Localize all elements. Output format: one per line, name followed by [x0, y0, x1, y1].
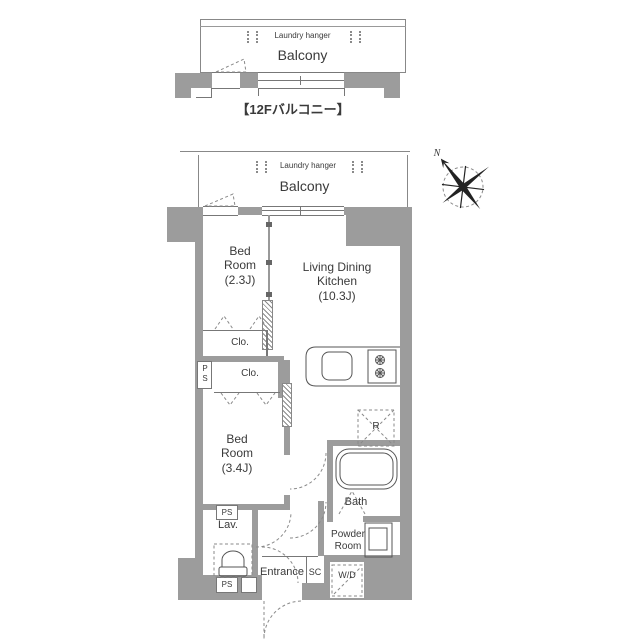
closet2-label: Clo. — [225, 368, 275, 380]
toilet-bowl — [222, 551, 244, 567]
symbols-overlay — [0, 0, 640, 640]
lav-label: Lav. — [204, 519, 252, 532]
ldk-label: Living DiningKitchen(10.3J) — [287, 260, 387, 303]
stove-burner-2 — [376, 369, 385, 378]
kitchen-stove — [368, 350, 396, 383]
kitchen-sink — [322, 352, 352, 380]
closet2-fold-doors — [221, 393, 275, 405]
bathtub-inner — [340, 453, 393, 485]
toilet-tank — [219, 567, 247, 576]
window-triangle-upper — [216, 59, 246, 72]
kitchen-counter — [306, 347, 400, 386]
ps-bottom-label: PS — [216, 580, 238, 590]
toilet-surround — [214, 544, 252, 577]
ps-mid-label: PS — [216, 508, 238, 518]
hall-upper-door-arc — [290, 453, 326, 489]
closet1-label: Clo. — [215, 337, 265, 349]
stove-burner-1 — [376, 356, 385, 365]
hall-lower-door-arc — [290, 502, 326, 538]
closet1-fold-doors — [215, 316, 268, 329]
bedroom2-label: BedRoom(3.4J) — [197, 432, 277, 475]
ps-vertical-label: PS — [200, 364, 210, 384]
sc-label: SC — [306, 567, 324, 578]
window-triangle-main — [205, 194, 235, 206]
powder-room-label: PowderRoom — [322, 529, 374, 553]
wd-label: W/D — [332, 570, 362, 581]
refrigerator-label: R — [366, 421, 386, 433]
floorplan-page: Laundry hanger Balcony 【12Fバルコニー】 Laundr… — [0, 0, 640, 640]
bedroom1-label: BedRoom(2.3J) — [200, 244, 280, 287]
lav-door-arc — [256, 512, 291, 547]
entrance-label: Entrance — [256, 566, 308, 579]
compass-north-label: N — [430, 148, 444, 160]
bath-label: Bath — [333, 496, 379, 509]
bathtub-outer — [336, 449, 397, 489]
entrance-door-arc — [264, 601, 302, 639]
